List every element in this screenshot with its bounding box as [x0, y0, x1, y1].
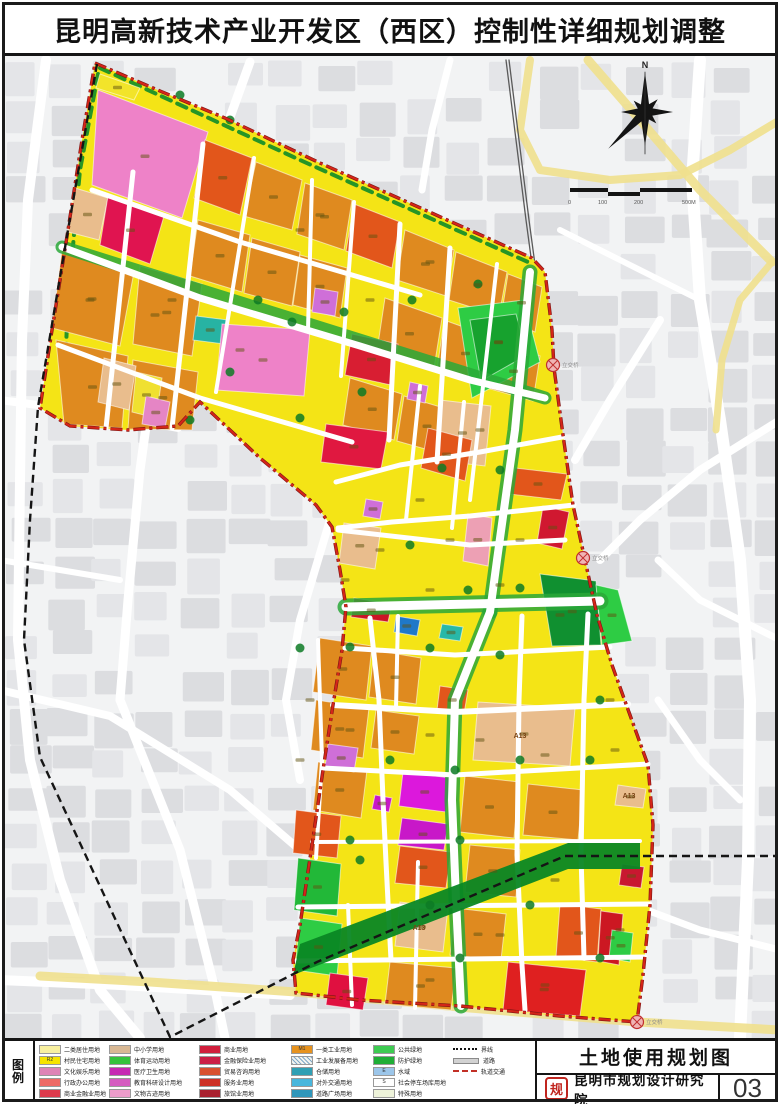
legend-item: E水域: [373, 1066, 446, 1077]
interchange-label: 立交桥: [592, 554, 609, 562]
parcel-code-mark: [86, 298, 95, 302]
parcel-code-mark: [269, 195, 278, 199]
legend-label: 金融保险业用地: [224, 1056, 266, 1065]
basemap-block: [222, 820, 257, 855]
basemap-block: [756, 484, 775, 518]
parcel-code-mark: [606, 936, 615, 940]
legend-label: 道路广场用地: [316, 1089, 352, 1098]
legend-panel: 图例 二类居住用地R2村民住宅用地文化娱乐用地行政办公用地商业金融业用地中小学用…: [5, 1038, 775, 1102]
basemap-block: [711, 251, 751, 280]
parcel-code-mark: [162, 311, 171, 315]
basemap-block: [231, 670, 269, 705]
parcel-code-mark: [142, 393, 151, 397]
street-green-blob: [451, 766, 460, 775]
parcel-code-mark: [416, 984, 425, 988]
street-green-blob: [586, 756, 595, 765]
interchange-label: 立交桥: [562, 361, 579, 369]
legend-column-2: 中小学用地体育运动用地医疗卫生用地教育科研设计用地文物古迹用地: [109, 1044, 182, 1099]
legend-swatch: M1: [291, 1045, 313, 1054]
parcel-code-mark: [616, 928, 625, 932]
basemap-block: [445, 1016, 483, 1038]
legend-label: 中小学用地: [134, 1045, 164, 1054]
parcel-code-mark: [496, 583, 505, 587]
parcel-code-mark: [342, 990, 351, 994]
legend-swatch: [199, 1056, 221, 1065]
legend-divider: [33, 1041, 35, 1102]
legend-item: 商业金融业用地: [39, 1088, 106, 1099]
legend-item: 教育科研设计用地: [109, 1077, 182, 1088]
legend-label: 仓储用地: [316, 1067, 340, 1076]
parcel-code-mark: [369, 234, 378, 238]
basemap-block: [266, 897, 298, 921]
legend-label: 特殊用地: [398, 1089, 422, 1098]
parcel-code-mark: [151, 313, 160, 317]
legend-item: M1一类工业用地: [291, 1044, 358, 1055]
parcel-code-mark: [458, 431, 467, 435]
basemap-block: [752, 176, 775, 204]
legend-swatch: [109, 1089, 131, 1098]
legend-item: R2村民住宅用地: [39, 1055, 106, 1066]
parcel-code-mark: [549, 810, 558, 814]
legend-line-symbol-reddash: [453, 1070, 477, 1078]
street-green-blob: [358, 388, 367, 397]
legend-item: 商业用地: [199, 1044, 266, 1055]
parcel-code-mark: [141, 154, 150, 158]
basemap-block: [268, 60, 302, 86]
legend-item: 仓储用地: [291, 1066, 358, 1077]
basemap-block: [403, 137, 439, 168]
street-green-blob: [356, 856, 365, 865]
basemap-block: [100, 479, 135, 509]
parcel-code-mark: [391, 730, 400, 734]
basemap-block: [669, 860, 710, 882]
parcel-code-mark: [426, 260, 435, 264]
basemap-block: [709, 826, 747, 859]
legend-swatch: [39, 1045, 61, 1054]
legend-column-4: M1一类工业用地工业发展备用地仓储用地对外交通用地道路广场用地: [291, 1044, 358, 1099]
parcel-code-mark: [391, 675, 400, 679]
street-green-blob: [226, 368, 235, 377]
legend-label: 防护绿地: [398, 1056, 422, 1065]
parcel-code-mark: [236, 348, 245, 352]
parcel-code-mark: [405, 332, 414, 336]
interchange-label: 立交桥: [646, 1018, 663, 1026]
planned-road: [312, 841, 640, 842]
parcel-code-mark: [112, 382, 121, 386]
legend-item: 道路广场用地: [291, 1088, 358, 1099]
parcel-code-mark: [447, 631, 456, 635]
parcel-code-mark: [341, 578, 350, 582]
legend-swatch: [109, 1045, 131, 1054]
parcel-code-mark: [617, 944, 626, 948]
basemap-block: [93, 519, 131, 545]
legend-swatch: [373, 1089, 395, 1098]
legend-item: 行政办公用地: [39, 1077, 106, 1088]
basemap-block: [670, 522, 705, 550]
parcel-code-mark: [419, 832, 428, 836]
street-green-blob: [516, 584, 525, 593]
parcel-code-mark: [402, 624, 411, 628]
legend-label: 医疗卫生用地: [134, 1067, 170, 1076]
parcel-code-mark: [509, 369, 518, 373]
basemap-block: [446, 143, 479, 175]
legend-swatch: [39, 1067, 61, 1076]
legend-label: 教育科研设计用地: [134, 1078, 182, 1087]
basemap-block: [5, 824, 37, 848]
basemap-block: [231, 485, 265, 514]
basemap-block: [134, 592, 166, 620]
parcel-label: A13: [514, 733, 527, 740]
basemap-block: [100, 859, 137, 884]
institute-name: 昆明市规划设计研究院: [574, 1069, 718, 1104]
legend-swatch: [199, 1089, 221, 1098]
parcel-code-mark: [316, 285, 325, 289]
scale-label: 500M: [682, 200, 696, 206]
parcel-code-mark: [548, 526, 557, 530]
parcel-code-mark: [494, 341, 503, 345]
basemap-block: [48, 600, 85, 631]
street-green-blob: [408, 296, 417, 305]
basemap-block: [670, 408, 707, 431]
basemap-block: [267, 860, 298, 888]
basemap-block: [5, 1014, 42, 1038]
basemap-block: [53, 445, 89, 473]
basemap-block: [135, 634, 169, 656]
basemap-block: [142, 901, 180, 933]
parcel-code-mark: [366, 298, 375, 302]
legend-swatch: [291, 1089, 313, 1098]
parcel-code-mark: [426, 733, 435, 737]
parcel-code-mark: [413, 391, 422, 395]
legend-item: 文物古迹用地: [109, 1088, 182, 1099]
legend-label: 文化娱乐用地: [64, 1067, 100, 1076]
legend-swatch: E: [373, 1067, 395, 1076]
street-green-blob: [496, 651, 505, 660]
parcel-code-mark: [461, 352, 470, 356]
basemap-block: [271, 1015, 311, 1038]
parcel-code-mark: [517, 301, 526, 305]
parcel-code-mark: [608, 613, 617, 617]
parcel-code-mark: [611, 748, 620, 752]
parcel-code-mark: [473, 283, 482, 287]
parcel-code-mark: [314, 945, 323, 949]
parcel-code-mark: [335, 727, 344, 731]
basemap-block: [672, 828, 701, 863]
legend-item: 界线: [453, 1044, 505, 1055]
parcel-code-mark: [259, 358, 268, 362]
legend-line-symbol-bar: [453, 1058, 479, 1064]
legend-item: 体育运动用地: [109, 1055, 182, 1066]
legend-item: 工业发展备用地: [291, 1055, 358, 1066]
parcel-code-mark: [355, 544, 364, 548]
basemap-block: [756, 712, 775, 741]
legend-item: 道路: [453, 1055, 505, 1066]
basemap-block: [759, 787, 775, 817]
basemap-block: [580, 521, 612, 552]
parcel-code-mark: [346, 728, 355, 732]
legend-heading: 图例: [5, 1041, 31, 1102]
street-green-blob: [526, 901, 535, 910]
street-green-blob: [456, 954, 465, 963]
basemap-block: [662, 939, 692, 973]
legend-swatch: [291, 1056, 313, 1065]
basemap-block: [53, 822, 90, 852]
basemap-block: [268, 788, 306, 811]
basemap-block: [95, 789, 131, 818]
basemap-block: [357, 61, 392, 85]
legend-swatch: [291, 1067, 313, 1076]
basemap-block: [625, 217, 665, 244]
parcel-code-mark: [206, 328, 215, 332]
street-green-blob: [438, 464, 447, 473]
map-canvas: A13A13A13立交桥立交桥立交桥N0100200500M: [5, 56, 775, 1038]
street-green-blob: [288, 318, 297, 327]
basemap-block: [49, 64, 81, 98]
legend-swatch: [109, 1067, 131, 1076]
legend-label: 体育运动用地: [134, 1056, 170, 1065]
titleblock-bottom: 规 昆明市规划设计研究院 03: [537, 1075, 775, 1102]
basemap-block: [583, 441, 619, 467]
legend-item: S社会停车场库用地: [373, 1077, 446, 1088]
basemap-block: [315, 1013, 350, 1038]
basemap-block: [666, 638, 704, 671]
legend-item: 轨道交通: [453, 1066, 505, 1077]
legend-swatch: [199, 1078, 221, 1087]
parcel-code-mark: [442, 452, 451, 456]
legend-swatch: [109, 1056, 131, 1065]
basemap-block: [489, 62, 521, 91]
basemap-block: [95, 671, 133, 695]
basemap-block: [225, 1012, 256, 1038]
legend-label: 商业用地: [224, 1045, 248, 1054]
basemap-block: [188, 481, 227, 511]
parcel-code-mark: [367, 358, 376, 362]
parcel-code-mark: [606, 698, 615, 702]
parcel-code-mark: [268, 270, 277, 274]
legend-item: 二类居住用地: [39, 1044, 106, 1055]
legend-swatch: [199, 1045, 221, 1054]
parcel-code-mark: [485, 805, 494, 809]
basemap-block: [53, 746, 95, 769]
basemap-block: [755, 292, 775, 321]
parcel-code-mark: [216, 254, 225, 258]
legend-label: 公共绿地: [398, 1045, 422, 1054]
parcel-code-mark: [446, 538, 455, 542]
basemap-block: [232, 594, 265, 628]
basemap-block: [135, 521, 177, 548]
basemap-block: [181, 598, 220, 628]
parcel-label: A13: [623, 793, 636, 800]
basemap-block: [92, 820, 130, 852]
street-green-blob: [340, 308, 349, 317]
parcel-code-mark: [541, 753, 550, 757]
basemap-block: [97, 442, 131, 466]
parcel-code-mark: [83, 213, 92, 217]
basemap-block: [577, 333, 615, 366]
legend-swatch: [39, 1078, 61, 1087]
basemap-block: [446, 98, 482, 121]
legend-column-lines: 界线道路轨道交通: [453, 1044, 505, 1077]
street-green-blob: [596, 696, 605, 705]
legend-label: 文物古迹用地: [134, 1089, 170, 1098]
legend-label: 行政办公用地: [64, 1078, 100, 1087]
basemap-block: [759, 562, 775, 590]
legend-item: 防护绿地: [373, 1055, 446, 1066]
basemap-block: [752, 365, 775, 399]
legend-heading-char: 例: [12, 1072, 24, 1085]
basemap-block: [403, 1015, 443, 1038]
legend-item: 中小学用地: [109, 1044, 182, 1055]
institute-logo-icon: 规: [545, 1077, 568, 1100]
parcel-code-mark: [448, 698, 457, 702]
parcel-code-mark: [496, 933, 505, 937]
legend-item: 贸易咨询用地: [199, 1066, 266, 1077]
basemap-block: [753, 333, 775, 356]
legend-label: 一类工业用地: [316, 1045, 352, 1054]
legend-column-1: 二类居住用地R2村民住宅用地文化娱乐用地行政办公用地商业金融业用地: [39, 1044, 106, 1099]
scale-label: 200: [634, 200, 643, 206]
legend-item: 文化娱乐用地: [39, 1066, 106, 1077]
legend-item: 特殊用地: [373, 1088, 446, 1099]
parcel-code-mark: [476, 428, 485, 432]
parcel-code-mark: [488, 869, 497, 873]
basemap-block: [12, 864, 47, 891]
basemap-block: [228, 747, 263, 772]
street-green-blob: [596, 954, 605, 963]
basemap-block: [185, 444, 218, 467]
street-green-blob: [254, 296, 263, 305]
legend-label: 二类居住用地: [64, 1045, 100, 1054]
basemap-block: [445, 176, 483, 201]
scale-label: 100: [598, 200, 607, 206]
land-use-map: A13A13A13立交桥立交桥立交桥N0100200500M: [5, 56, 775, 1038]
legend-label: 服务业用地: [224, 1078, 254, 1087]
basemap-block: [53, 630, 92, 654]
legend-item: 服务业用地: [199, 1077, 266, 1088]
legend-item: 对外交通用地: [291, 1077, 358, 1088]
basemap-block: [540, 67, 578, 100]
legend-swatch: [39, 1089, 61, 1098]
basemap-block: [532, 177, 570, 205]
street-green-blob: [296, 414, 305, 423]
street-green-blob: [516, 756, 525, 765]
legend-label: 工业发展备用地: [316, 1056, 358, 1065]
planning-map-page: 昆明高新技术产业开发区（西区）控制性详细规划调整 A13A13A13立交桥立交桥…: [0, 0, 780, 1104]
legend-label: 水域: [398, 1067, 410, 1076]
parcel-code-mark: [627, 874, 636, 878]
basemap-block: [134, 562, 175, 586]
parcel-code-mark: [321, 300, 330, 304]
basemap-block: [755, 520, 775, 556]
legend-label: 轨道交通: [481, 1067, 505, 1076]
page-title: 昆明高新技术产业开发区（西区）控制性详细规划调整: [54, 10, 726, 49]
basemap-block: [621, 291, 657, 318]
parcel-code-mark: [474, 932, 483, 936]
basemap-block: [52, 674, 86, 697]
legend-label: 对外交通用地: [316, 1078, 352, 1087]
parcel-code-mark: [151, 411, 160, 415]
street-green-blob: [176, 91, 185, 100]
basemap-block: [52, 1014, 81, 1038]
basemap-block: [624, 179, 656, 214]
basemap-block: [714, 68, 750, 93]
legend-label: 村民住宅用地: [64, 1056, 100, 1065]
parcel-code-mark: [368, 407, 377, 411]
basemap-block: [577, 296, 618, 326]
basemap-block: [754, 594, 775, 623]
legend-label: 界线: [481, 1045, 493, 1054]
legend-line-symbol-dotted: [453, 1048, 477, 1056]
street-green-blob: [386, 756, 395, 765]
basemap-block: [94, 902, 128, 935]
basemap-block: [187, 519, 226, 553]
scale-label: 0: [568, 200, 571, 206]
parcel-code-mark: [335, 788, 344, 792]
basemap-block: [185, 711, 223, 738]
basemap-block: [313, 104, 347, 128]
basemap-block: [268, 520, 308, 546]
basemap-block: [222, 940, 252, 972]
basemap-block: [6, 897, 38, 925]
legend-label: 商业金融业用地: [64, 1089, 106, 1098]
parcel-code-mark: [350, 445, 359, 449]
basemap-block: [5, 62, 34, 96]
parcel-code-mark: [540, 988, 549, 992]
basemap-block: [756, 825, 775, 855]
legend-swatch: [373, 1056, 395, 1065]
parcel-code-mark: [551, 878, 560, 882]
legend-item: 医疗卫生用地: [109, 1066, 182, 1077]
parcel-code-mark: [416, 498, 425, 502]
parcel-code-mark: [420, 790, 429, 794]
legend-label: 旅馆业用地: [224, 1089, 254, 1098]
parcel-code-mark: [556, 613, 565, 617]
basemap-block: [711, 100, 740, 134]
parcel-code-mark: [316, 213, 325, 217]
street-green-blob: [456, 836, 465, 845]
parcel-code-mark: [369, 507, 378, 511]
map-sheet-title: 土地使用规划图: [537, 1041, 775, 1072]
basemap-block: [92, 750, 123, 777]
parcel-code-mark: [313, 885, 322, 889]
legend-label: 贸易咨询用地: [224, 1067, 260, 1076]
street-green-blob: [496, 466, 505, 475]
north-label: N: [642, 60, 649, 70]
street-green-blob: [426, 901, 435, 910]
basemap-block: [227, 633, 258, 659]
parcel-code-mark: [541, 983, 550, 987]
legend-label: 道路: [483, 1056, 495, 1065]
street-green-blob: [464, 586, 473, 595]
basemap-block: [141, 860, 173, 894]
parcel-code-mark: [296, 228, 305, 232]
parcel-code-mark: [158, 396, 167, 400]
basemap-block: [229, 519, 271, 544]
basemap-block: [230, 714, 264, 740]
legend-swatch: S: [373, 1078, 395, 1087]
basemap-block: [360, 103, 396, 137]
parcel-code-mark: [423, 424, 432, 428]
basemap-block: [626, 408, 663, 441]
basemap-block: [183, 672, 224, 701]
basemap-block: [184, 786, 218, 811]
legend-swatch: R2: [39, 1056, 61, 1065]
street-green-blob: [426, 644, 435, 653]
basemap-block: [663, 979, 698, 1003]
basemap-block: [540, 99, 579, 129]
parcel-label: A13: [413, 925, 426, 932]
basemap-block: [229, 860, 271, 886]
